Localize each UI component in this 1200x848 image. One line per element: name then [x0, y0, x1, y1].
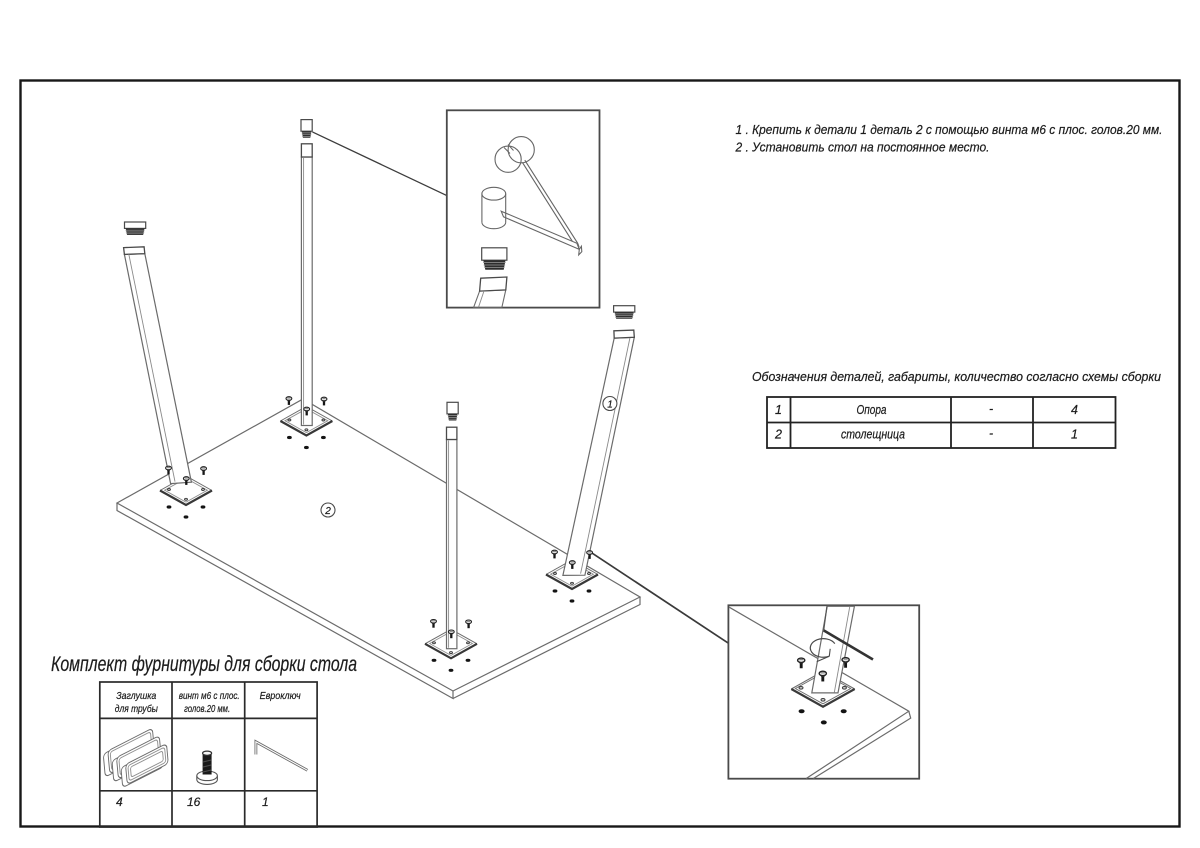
- svg-text:Обозначения деталей, габариты,: Обозначения деталей, габариты, количеств…: [752, 369, 1161, 384]
- svg-text:1: 1: [607, 399, 613, 410]
- svg-text:голов.20 мм.: голов.20 мм.: [184, 703, 230, 715]
- svg-text:1: 1: [262, 795, 269, 809]
- svg-text:4: 4: [1071, 403, 1078, 417]
- svg-text:для трубы: для трубы: [115, 703, 158, 715]
- svg-text:Опора: Опора: [857, 403, 887, 417]
- svg-text:1: 1: [775, 403, 782, 417]
- svg-text:винт м6 с плос.: винт м6 с плос.: [179, 690, 240, 702]
- svg-text:-: -: [989, 427, 993, 441]
- svg-text:Евроключ: Евроключ: [260, 690, 301, 702]
- svg-text:-: -: [989, 402, 993, 416]
- svg-text:2 . Установить стол на постоян: 2 . Установить стол на постоянное место.: [735, 139, 990, 154]
- svg-text:Заглушка: Заглушка: [116, 690, 156, 702]
- svg-text:столещница: столещница: [841, 428, 905, 442]
- svg-text:4: 4: [116, 795, 123, 809]
- svg-text:Комплект фурнитуры для сборки: Комплект фурнитуры для сборки стола: [51, 652, 357, 676]
- svg-text:2: 2: [324, 506, 331, 517]
- svg-text:2: 2: [774, 428, 782, 442]
- svg-text:1 . Крепить к детали 1 деталь: 1 . Крепить к детали 1 деталь 2 с помощь…: [736, 122, 1163, 137]
- svg-text:1: 1: [1071, 428, 1078, 442]
- svg-text:16: 16: [187, 795, 201, 809]
